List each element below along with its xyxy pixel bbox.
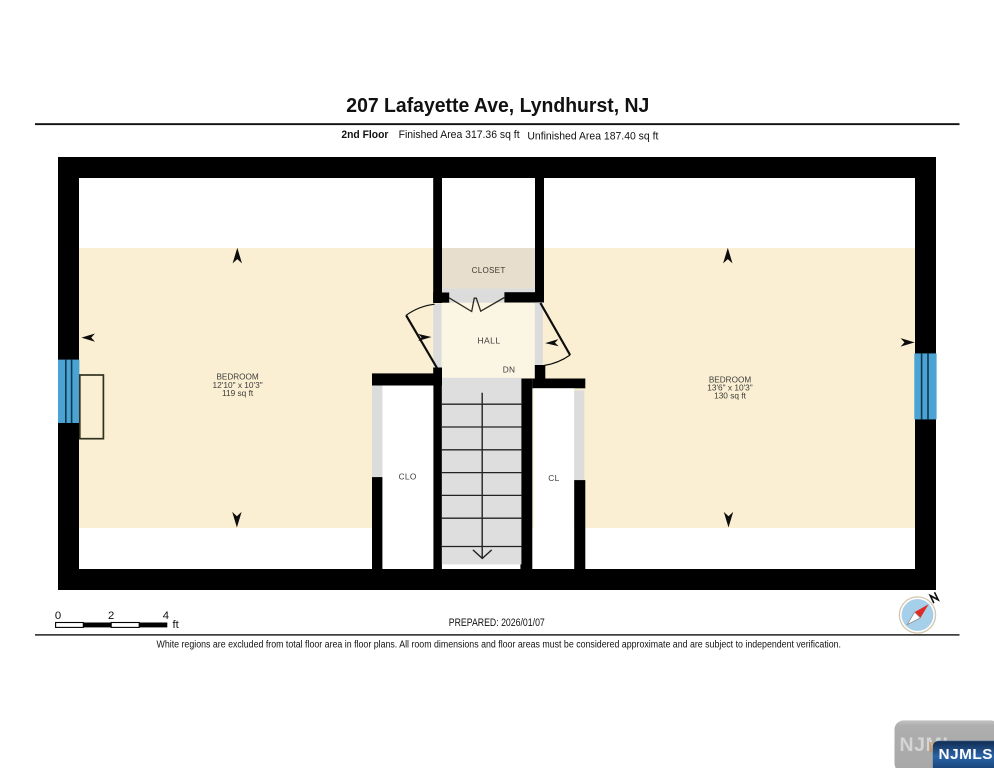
svg-text:130 sq ft: 130 sq ft: [714, 391, 747, 401]
svg-text:CLOSET: CLOSET: [472, 266, 506, 275]
svg-text:4: 4: [163, 610, 169, 622]
svg-text:HALL: HALL: [477, 336, 500, 346]
svg-text:207 Lafayette Ave, Lyndhurst,: 207 Lafayette Ave, Lyndhurst, NJ: [346, 95, 649, 117]
svg-text:PREPARED: 2026/01/07: PREPARED: 2026/01/07: [449, 617, 545, 629]
svg-text:119 sq ft: 119 sq ft: [222, 388, 254, 398]
svg-text:DN: DN: [503, 364, 516, 374]
svg-text:Finished Area 317.36 sq ft: Finished Area 317.36 sq ft: [399, 129, 521, 141]
svg-text:CL: CL: [548, 473, 559, 483]
svg-text:2nd Floor: 2nd Floor: [341, 129, 389, 141]
svg-text:NJMLS: NJMLS: [939, 747, 994, 763]
svg-text:CLO: CLO: [399, 472, 417, 482]
svg-text:Unfinished Area 187.40 sq ft: Unfinished Area 187.40 sq ft: [527, 131, 659, 143]
svg-text:ft: ft: [173, 619, 180, 631]
svg-text:White regions are excluded fro: White regions are excluded from total fl…: [157, 639, 842, 650]
svg-text:2: 2: [108, 610, 114, 622]
svg-text:0: 0: [55, 610, 61, 622]
